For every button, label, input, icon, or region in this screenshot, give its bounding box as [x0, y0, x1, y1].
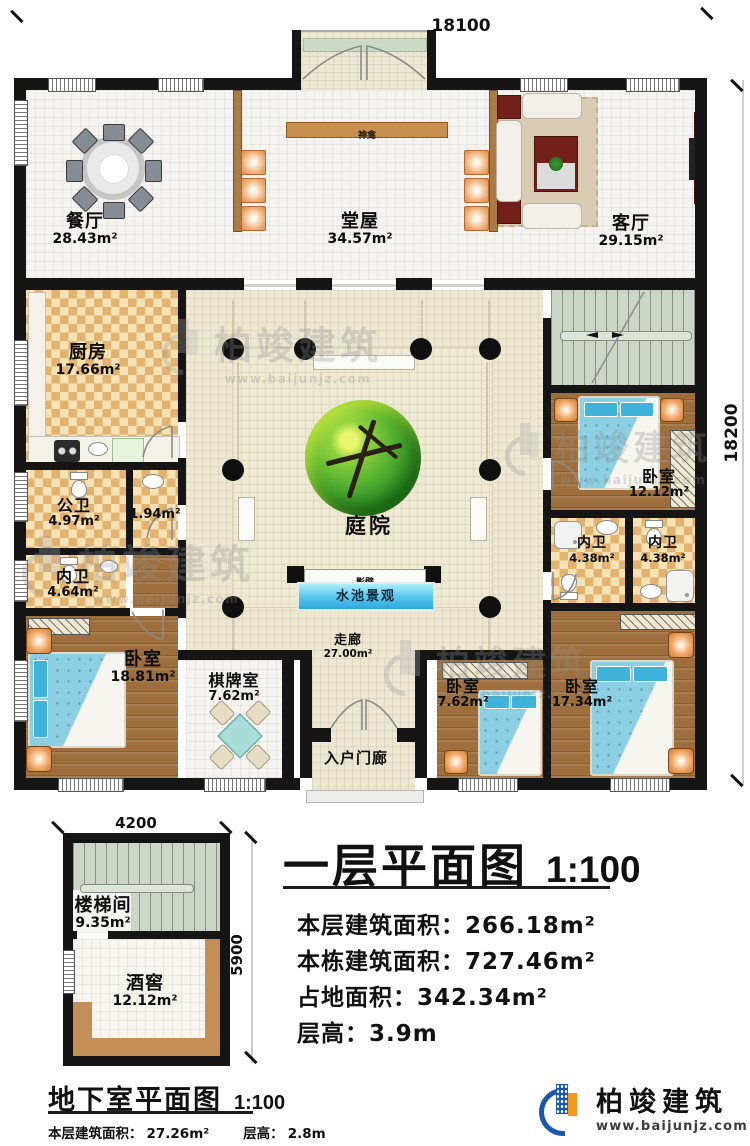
wall	[282, 650, 294, 778]
dining-chair	[66, 160, 83, 182]
room-label-bedroom-s1: 卧室 7.62m²	[437, 678, 488, 710]
window	[204, 778, 266, 792]
bedroom-sw-nook-floor	[133, 555, 178, 608]
hall-chair	[464, 178, 489, 203]
room-area: 27.00m²	[324, 649, 373, 661]
room-area: 12.12m²	[629, 486, 689, 501]
info-value: 27.26m²	[147, 1126, 210, 1142]
entry-step	[306, 790, 424, 803]
room-label-inner-bath-e2: 内卫 4.38m²	[640, 536, 685, 565]
room-label-chess: 棋牌室 7.62m²	[208, 672, 259, 704]
floorplan-page: 影壁 水池景观 神龛	[0, 0, 750, 1146]
info-label: 本层建筑面积：	[48, 1126, 143, 1142]
room-area: 4.97m²	[48, 515, 99, 530]
window	[14, 100, 28, 166]
hall-chair	[241, 178, 266, 203]
colonnade-line	[486, 362, 488, 462]
hall-chair	[464, 150, 489, 175]
window	[610, 778, 670, 792]
wall	[165, 608, 186, 616]
window	[14, 340, 28, 406]
nightstand	[26, 746, 52, 772]
dim-tick	[219, 821, 232, 834]
courtyard-pillar	[479, 338, 501, 360]
toilet-icon	[70, 472, 88, 498]
logo-building-blue	[556, 1084, 568, 1114]
porch-wall	[292, 30, 301, 90]
nightstand	[554, 398, 578, 422]
wall	[178, 278, 186, 422]
room-label-inner-bath-w: 内卫 4.64m²	[47, 568, 98, 600]
room-name: 内卫	[569, 536, 614, 552]
shower-icon	[666, 570, 694, 602]
wall	[26, 608, 130, 616]
coffee-table	[534, 136, 578, 192]
wall	[300, 650, 312, 778]
info-line-2: 本栋建筑面积：727.46m²	[297, 942, 596, 976]
screen-wall-pier	[424, 566, 441, 583]
room-area: 4.38m²	[640, 552, 685, 565]
window	[14, 660, 28, 722]
room-name: 卧室	[437, 678, 488, 696]
brand-name: 柏竣建筑	[596, 1080, 748, 1119]
room-area: 4.64m²	[47, 586, 98, 601]
basement-wall	[63, 1056, 230, 1066]
info-value: 2.8m	[288, 1126, 326, 1142]
wall	[543, 278, 707, 290]
courtyard-tree	[305, 400, 421, 516]
room-name: 堂屋	[327, 212, 392, 232]
brand-logo-icon	[538, 1082, 588, 1132]
sofa-left	[496, 120, 522, 202]
basement-dim-top: 4200	[115, 814, 157, 832]
room-name: 餐厅	[52, 212, 117, 232]
shrine-label: 神龛	[358, 131, 376, 141]
info-label: 占地面积：	[297, 985, 417, 1011]
dining-chair	[145, 160, 162, 182]
hall-chair	[241, 206, 266, 231]
dim-tick	[700, 7, 713, 20]
room-name: 庭院	[345, 515, 393, 539]
courtyard-beam	[313, 355, 415, 370]
courtyard-slab-right	[470, 497, 487, 541]
dim-tick	[51, 821, 64, 834]
room-label-hall: 堂屋 34.57m²	[327, 212, 392, 248]
opening-sill	[332, 284, 396, 287]
courtyard-slab-left	[238, 497, 255, 541]
room-area: 28.43m²	[52, 232, 117, 248]
pillow	[584, 402, 618, 417]
room-label-stairwell: 楼梯间 9.35m²	[75, 896, 132, 932]
room-name: 入户门廊	[324, 750, 388, 767]
wall	[625, 518, 633, 603]
wall	[26, 278, 178, 290]
room-area: 29.15m²	[598, 234, 663, 250]
info-line-1: 本层建筑面积：266.18m²	[297, 906, 596, 940]
wall	[543, 490, 551, 572]
pillow	[33, 700, 48, 738]
wall	[695, 78, 707, 790]
room-label-dining: 餐厅 28.43m²	[52, 212, 117, 248]
wall	[26, 548, 186, 555]
wall	[543, 510, 707, 518]
stove-icon	[54, 440, 80, 462]
basement-wall	[108, 931, 220, 939]
porch-top-line	[301, 30, 427, 32]
dim-line-right	[742, 80, 744, 786]
info-value: 727.46m²	[465, 949, 596, 975]
courtyard-pillar	[479, 596, 501, 618]
toilet-icon	[560, 574, 578, 600]
basement-window	[63, 950, 75, 994]
window	[458, 778, 518, 792]
basement-dim-right: 5900	[228, 910, 246, 1000]
room-area: 9.35m²	[75, 916, 132, 932]
info-label: 本栋建筑面积：	[297, 949, 465, 975]
info-value: 3.9m	[369, 1021, 438, 1047]
room-label-inner-bath-e1: 内卫 4.38m²	[569, 536, 614, 565]
room-label-bedroom-sw: 卧室 18.81m²	[110, 650, 175, 686]
cellar-band-step	[73, 1002, 92, 1038]
courtyard-pillar	[410, 338, 432, 360]
pool-label: 水池景观	[336, 589, 396, 604]
sink-icon	[640, 584, 662, 599]
kitchen-counter-left	[28, 292, 46, 438]
dim-tick	[10, 10, 23, 23]
colonnade-line	[232, 618, 234, 654]
room-label-bedroom-e: 卧室 12.12m²	[629, 468, 689, 500]
shrine-cabinet: 神龛	[286, 122, 448, 138]
plant-icon	[549, 157, 563, 171]
nightstand	[668, 632, 694, 658]
kitchen-sink	[88, 442, 108, 456]
wall	[26, 462, 186, 470]
sofa-bottom	[522, 203, 582, 229]
floor-title-underline	[283, 886, 610, 889]
window	[58, 778, 124, 792]
basement-wall	[63, 833, 230, 843]
courtyard-pillar	[222, 338, 244, 360]
top-porch-mat	[303, 38, 427, 52]
room-area: 7.62m²	[437, 696, 488, 711]
room-area: 34.57m²	[327, 232, 392, 248]
info-line-4: 层高：3.9m	[297, 1014, 438, 1048]
sink-icon	[596, 520, 618, 535]
room-name: 卧室	[110, 650, 175, 670]
room-name: 楼梯间	[75, 896, 132, 916]
info-line-3: 占地面积：342.34m²	[297, 978, 548, 1012]
porch-wall	[427, 30, 436, 90]
room-area: 18.81m²	[110, 670, 175, 686]
room-label-kitchen: 厨房 17.66m²	[55, 343, 120, 379]
nightstand	[660, 398, 684, 422]
logo-building-orange	[568, 1093, 577, 1116]
courtyard-pillar	[222, 459, 244, 481]
nightstand	[26, 628, 52, 654]
room-area: 1.94m²	[129, 508, 180, 523]
info-value: 266.18m²	[465, 913, 596, 939]
wall	[427, 650, 551, 660]
opening-sill	[432, 284, 484, 287]
room-label-cellar: 酒窖 12.12m²	[112, 974, 177, 1010]
porch-pier	[300, 728, 331, 742]
room-name: 卧室	[629, 468, 689, 486]
room-area: 17.66m²	[55, 363, 120, 379]
room-label-entry-porch: 入户门廊	[324, 750, 388, 767]
room-name: 厨房	[55, 343, 120, 363]
room-area: 7.62m²	[208, 690, 259, 705]
room-label-living: 客厅 29.15m²	[598, 214, 663, 250]
info-label: 层高：	[243, 1126, 284, 1142]
dim-right: 18200	[722, 388, 742, 478]
colonnade-pier	[296, 278, 332, 290]
window	[626, 78, 680, 92]
room-name: 酒窖	[112, 974, 177, 994]
room-label-corridor: 走廊 27.00m²	[324, 634, 373, 660]
pillow	[511, 695, 537, 709]
living-end-table	[497, 95, 521, 119]
hall-chair	[241, 150, 266, 175]
info-value: 342.34m²	[417, 985, 548, 1011]
wardrobe-bedroom-s2	[620, 614, 700, 630]
colonnade-pier	[186, 278, 244, 290]
dining-table-center	[99, 154, 129, 184]
info-label: 层高：	[297, 1021, 369, 1047]
room-name: 走廊	[324, 634, 373, 649]
nightstand	[444, 750, 468, 774]
sofa-top	[522, 93, 582, 119]
room-area: 17.34m²	[552, 696, 612, 711]
room-name: 客厅	[598, 214, 663, 234]
wall	[543, 603, 707, 611]
courtyard-pillar	[294, 338, 316, 360]
room-name: 卧室	[552, 678, 612, 696]
room-area: 12.12m²	[112, 994, 177, 1010]
wall	[543, 385, 707, 393]
nightstand	[668, 748, 694, 774]
room-label-public-bath: 公卫 4.97m²	[48, 497, 99, 529]
brand-url: www.baijunjz.com	[596, 1119, 748, 1134]
window	[14, 560, 28, 602]
basement-title-underline	[48, 1111, 253, 1114]
opening-sill	[244, 284, 296, 287]
sink-icon	[142, 474, 164, 489]
room-label-bedroom-s2: 卧室 17.34m²	[552, 678, 612, 710]
basement-wall	[63, 931, 77, 939]
room-name: 公卫	[48, 497, 99, 515]
hall-chair	[464, 206, 489, 231]
colonnade-pier	[396, 278, 432, 290]
brand-logo: 柏竣建筑 www.baijunjz.com	[538, 1080, 748, 1134]
colonnade-line	[488, 618, 490, 654]
courtyard-pillar	[222, 596, 244, 618]
screen-wall-pier	[287, 566, 304, 583]
pillow	[33, 660, 48, 698]
room-area: 4.38m²	[569, 552, 614, 565]
courtyard-pillar	[479, 459, 501, 481]
basement-handrail	[80, 884, 194, 893]
window	[48, 78, 96, 92]
window	[520, 78, 568, 92]
pillow	[633, 666, 668, 682]
living-end-table	[497, 200, 521, 224]
dining-chair	[103, 124, 125, 141]
sink-icon	[100, 560, 118, 573]
basement-info-line: 本层建筑面积：27.26m²层高：2.8m	[48, 1122, 330, 1142]
room-name: 内卫	[47, 568, 98, 586]
info-label: 本层建筑面积：	[297, 913, 465, 939]
colonnade-line	[237, 362, 239, 462]
porch-pier	[397, 728, 427, 742]
room-label-store: 1.94m²	[129, 508, 180, 523]
pillow	[620, 402, 654, 417]
room-name: 内卫	[640, 536, 685, 552]
window	[158, 78, 204, 92]
floor-title-scale: 1:100	[546, 849, 641, 891]
colonnade-pier	[484, 278, 543, 290]
dim-top: 18100	[431, 16, 490, 36]
wall	[543, 600, 551, 778]
basement-dim-line	[251, 835, 253, 1063]
entry-porch-floor	[312, 658, 415, 790]
window	[14, 472, 28, 522]
water-pool: 水池景观	[297, 582, 435, 611]
room-label-courtyard: 庭院	[345, 515, 393, 539]
stairs-handrail	[560, 331, 692, 341]
room-name: 棋牌室	[208, 672, 259, 690]
wall	[415, 650, 427, 778]
